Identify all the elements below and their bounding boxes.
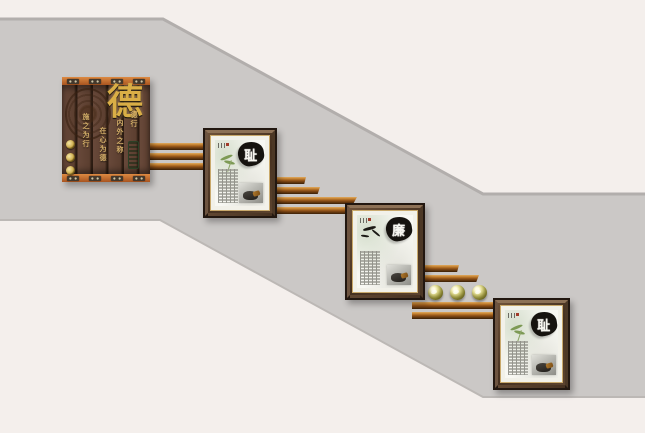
frame-bevel: 廉 [347,205,423,298]
metal-plate-icon [67,79,79,84]
wood-slat [412,302,502,309]
frame-bevel: 耻 [205,130,275,216]
red-seal-icon [226,143,229,146]
gold-sphere-icon [450,285,465,300]
metal-plate-icon [67,176,79,181]
picture-frame-1: 耻 [203,128,277,218]
title-seal-icon [360,218,368,223]
panel-column-text: 德行 [129,111,139,129]
metal-plate-icon [111,176,123,181]
virtue-board: 德 德行 内外之称 在心为德 施之为行 [62,77,150,182]
panel-bottom-trim [62,174,150,182]
artwork-character: 耻 [244,145,257,164]
picture-frame-3: 耻 [493,298,570,390]
brush-rest-icon [252,190,260,197]
panel-main-character: 德 [105,79,145,125]
gold-sphere-icon [472,285,487,300]
ink-circle: 廉 [384,215,413,242]
picture-frame-2: 廉 [345,203,425,300]
metal-plate-icon [89,176,101,181]
gold-stud-icon [66,166,75,175]
frame-bevel: 耻 [495,300,568,388]
brush-rest-icon [400,272,408,279]
sphere-highlight [430,289,437,295]
bamboo-ink-stroke-icon [361,234,369,237]
ink-stone-photo [532,355,556,375]
panel-column-text: 内外之称 [115,119,125,155]
ink-art-integrity: 廉 [357,215,413,288]
title-seal-icon [508,313,516,318]
brush-rest-icon [545,362,553,369]
poem-text-block [218,169,238,203]
frame-matte: 耻 [210,135,270,211]
sphere-highlight [474,289,481,295]
red-seal-icon [516,313,519,316]
poem-text-block [508,341,528,375]
ink-stone-photo [387,265,411,285]
jade-tag-icon [128,141,139,169]
frame-matte: 廉 [352,210,418,293]
gold-sphere-icon [428,285,443,300]
poem-text-block [360,251,380,285]
bamboo-ink-stroke-icon [372,229,381,237]
gold-stud-icon [66,153,75,162]
artwork-character: 廉 [392,220,405,239]
frame-matte: 耻 [500,305,563,383]
artwork-character: 耻 [537,315,550,334]
panel-column-text: 在心为德 [98,127,108,163]
ink-stone-photo [239,183,263,203]
gold-stud-icon [66,140,75,149]
sphere-highlight [452,289,459,295]
metal-plate-icon [89,79,101,84]
staircase-culture-wall-design: 德 德行 内外之称 在心为德 施之为行 耻 [0,0,645,433]
metal-plate-icon [133,176,145,181]
ink-art-shame: 耻 [505,310,558,378]
red-seal-icon [368,218,371,221]
ink-art-shame: 耻 [215,140,265,206]
ink-circle: 耻 [529,310,558,337]
panel-column-text: 施之为行 [81,113,91,149]
title-seal-icon [218,143,226,148]
ink-circle: 耻 [236,140,265,167]
